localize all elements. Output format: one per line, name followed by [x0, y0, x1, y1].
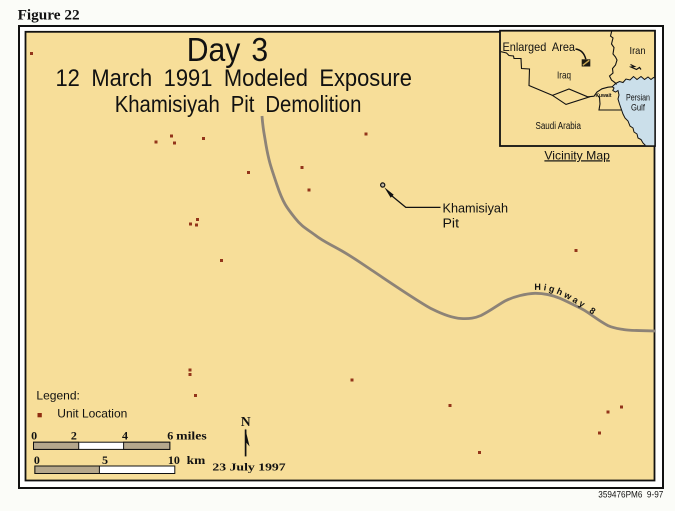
svg-text:Iraq: Iraq	[557, 70, 571, 82]
svg-text:Kuwait: Kuwait	[596, 93, 612, 99]
svg-text:6: 6	[167, 428, 173, 442]
svg-text:miles: miles	[176, 428, 207, 442]
svg-text:Pit: Pit	[443, 215, 460, 230]
svg-text:Vicinity Map: Vicinity Map	[544, 148, 610, 162]
svg-text:Figure 22: Figure 22	[18, 7, 80, 23]
svg-text:4: 4	[122, 428, 128, 442]
svg-text:N: N	[241, 414, 251, 429]
svg-text:Enlarged Area: Enlarged Area	[503, 40, 576, 54]
svg-text:Day 3: Day 3	[187, 31, 269, 68]
svg-text:359476PM6 9-97: 359476PM6 9-97	[598, 489, 663, 499]
svg-text:Unit Location: Unit Location	[57, 407, 127, 421]
svg-text:Legend:: Legend:	[36, 389, 80, 403]
svg-text:0: 0	[34, 453, 40, 467]
svg-text:Khamisiyah: Khamisiyah	[443, 200, 509, 215]
svg-text:Gulf: Gulf	[631, 103, 645, 114]
svg-text:12 March 1991 Modeled Exposure: 12 March 1991 Modeled Exposure	[56, 65, 412, 92]
svg-text:2: 2	[71, 428, 77, 442]
svg-text:5: 5	[102, 453, 108, 467]
svg-text:0: 0	[31, 428, 37, 442]
svg-text:Iran: Iran	[630, 45, 646, 57]
svg-text:23 July 1997: 23 July 1997	[212, 463, 285, 474]
svg-text:Khamisiyah Pit Demolition: Khamisiyah Pit Demolition	[115, 91, 362, 117]
svg-text:km: km	[187, 453, 206, 467]
svg-text:Saudi Arabia: Saudi Arabia	[536, 121, 582, 132]
svg-text:10: 10	[168, 453, 180, 467]
